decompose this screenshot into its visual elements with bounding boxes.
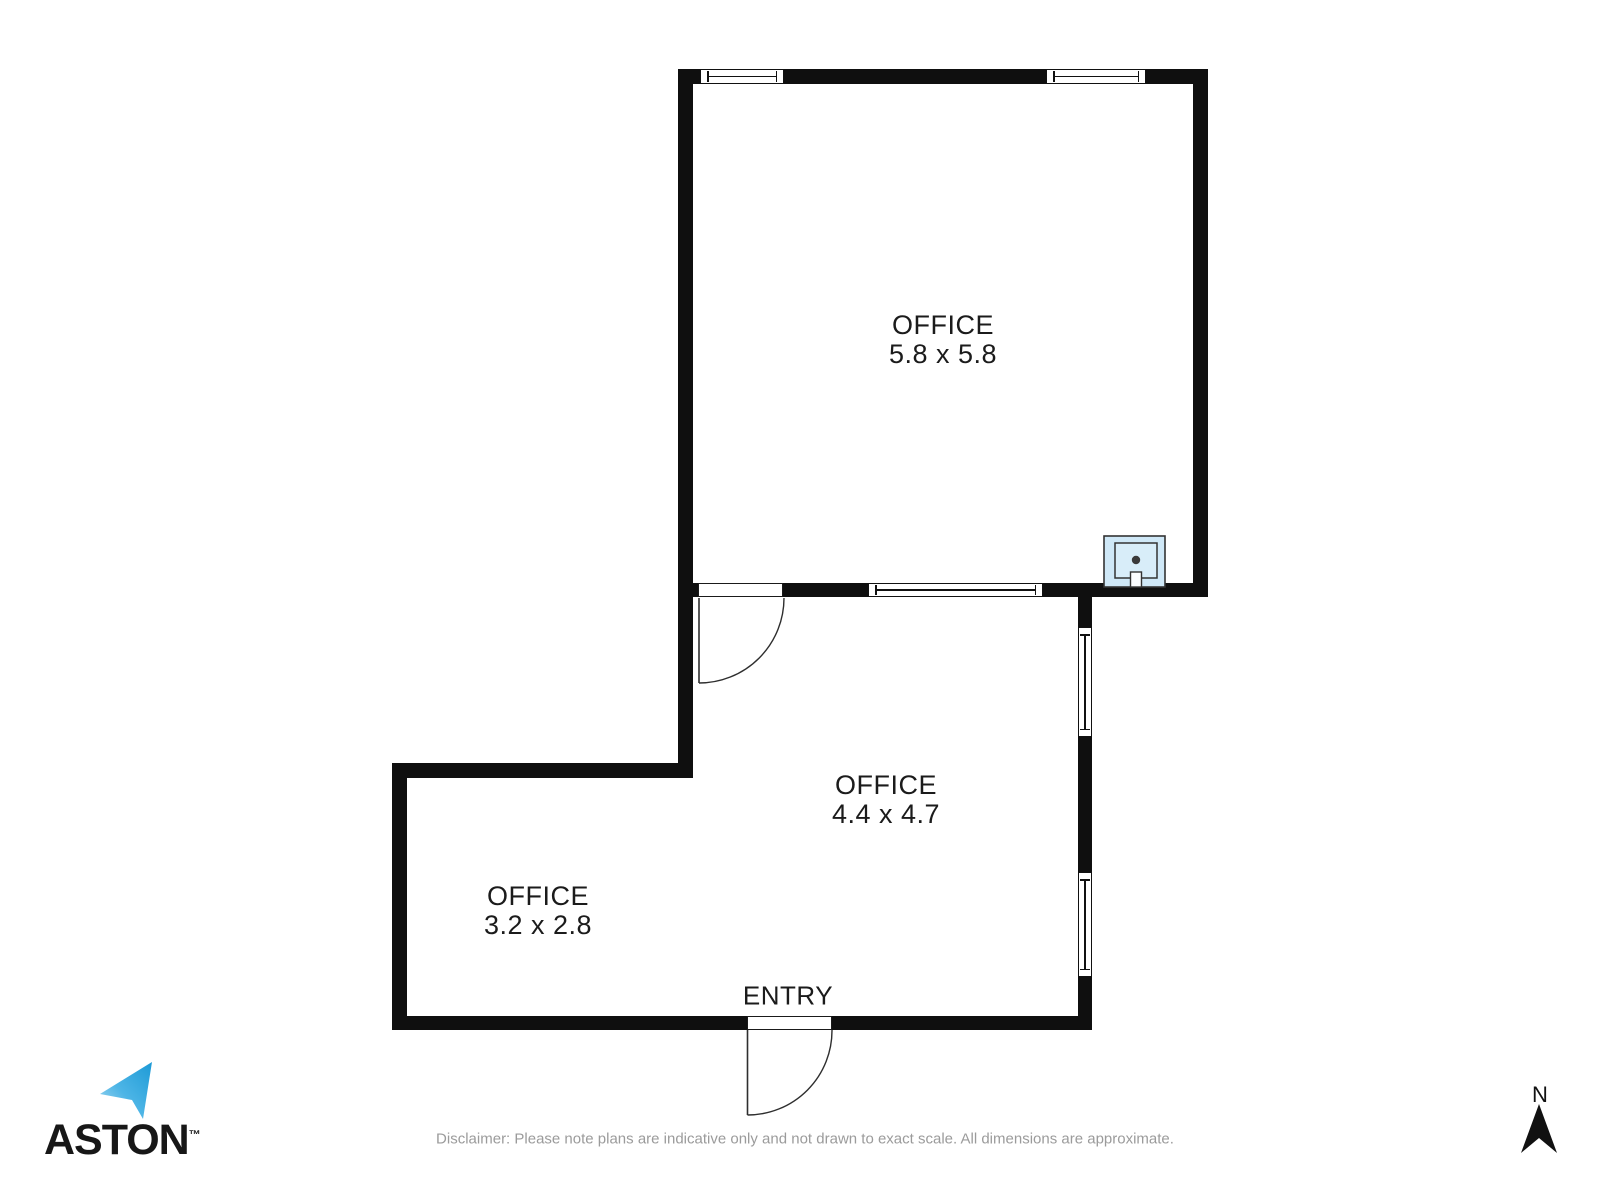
wall-upper-south-c: [1043, 583, 1208, 597]
disclaimer-text: Disclaimer: Please note plans are indica…: [436, 1131, 1174, 1148]
window-lower-east-1: [1078, 627, 1092, 737]
room-name: OFFICE: [832, 771, 940, 800]
wall-room3-north: [392, 763, 693, 778]
wall-west: [678, 69, 693, 778]
room-name: OFFICE: [889, 311, 997, 340]
wall-upper-south-a: [678, 583, 698, 597]
north-label: N: [1532, 1082, 1548, 1108]
room-name: OFFICE: [484, 882, 592, 911]
wall-upper-south-b: [783, 583, 868, 597]
sink-drain: [1132, 556, 1140, 564]
wall-lower-east-a: [1078, 597, 1092, 627]
floorplan: OFFICE 5.8 x 5.8 OFFICE 4.4 x 4.7 OFFICE…: [0, 0, 1600, 1190]
sink-outer: [1104, 536, 1165, 587]
aston-logo-icon: [95, 1055, 160, 1125]
brand-wordmark: ASTON™: [44, 1116, 201, 1165]
upper-door-arc: [699, 598, 784, 683]
entry-door-arc: [748, 1030, 833, 1115]
brand-tm: ™: [189, 1128, 201, 1142]
room-dims: 3.2 x 2.8: [484, 911, 592, 940]
wall-lower-east-c: [1078, 977, 1092, 1030]
entry-label: ENTRY: [743, 981, 833, 1012]
logo-arrow: [100, 1062, 152, 1119]
brand-text: ASTON: [44, 1116, 189, 1164]
room-label-left: OFFICE 3.2 x 2.8: [484, 882, 592, 940]
north-arrow: [1521, 1104, 1557, 1153]
entry-door-opening: [747, 1016, 832, 1030]
room-dims: 4.4 x 4.7: [832, 800, 940, 829]
wall-south-a: [392, 1016, 747, 1030]
window-upper-north-2: [1046, 69, 1146, 84]
wall-south-b: [832, 1016, 1092, 1030]
sink-basin: [1115, 543, 1157, 578]
room-label-upper: OFFICE 5.8 x 5.8: [889, 311, 997, 369]
wall-room3-west: [392, 763, 407, 1030]
window-upper-south: [868, 583, 1043, 597]
room-dims: 5.8 x 5.8: [889, 340, 997, 369]
window-upper-north-1: [700, 69, 784, 84]
door-opening-upper: [698, 583, 783, 597]
room-label-lower: OFFICE 4.4 x 4.7: [832, 771, 940, 829]
wall-upper-east: [1193, 69, 1208, 597]
north-arrow-icon: [1510, 1100, 1570, 1160]
wall-lower-east-b: [1078, 737, 1092, 872]
wall-upper-north-b: [784, 69, 1046, 84]
window-lower-east-2: [1078, 872, 1092, 977]
